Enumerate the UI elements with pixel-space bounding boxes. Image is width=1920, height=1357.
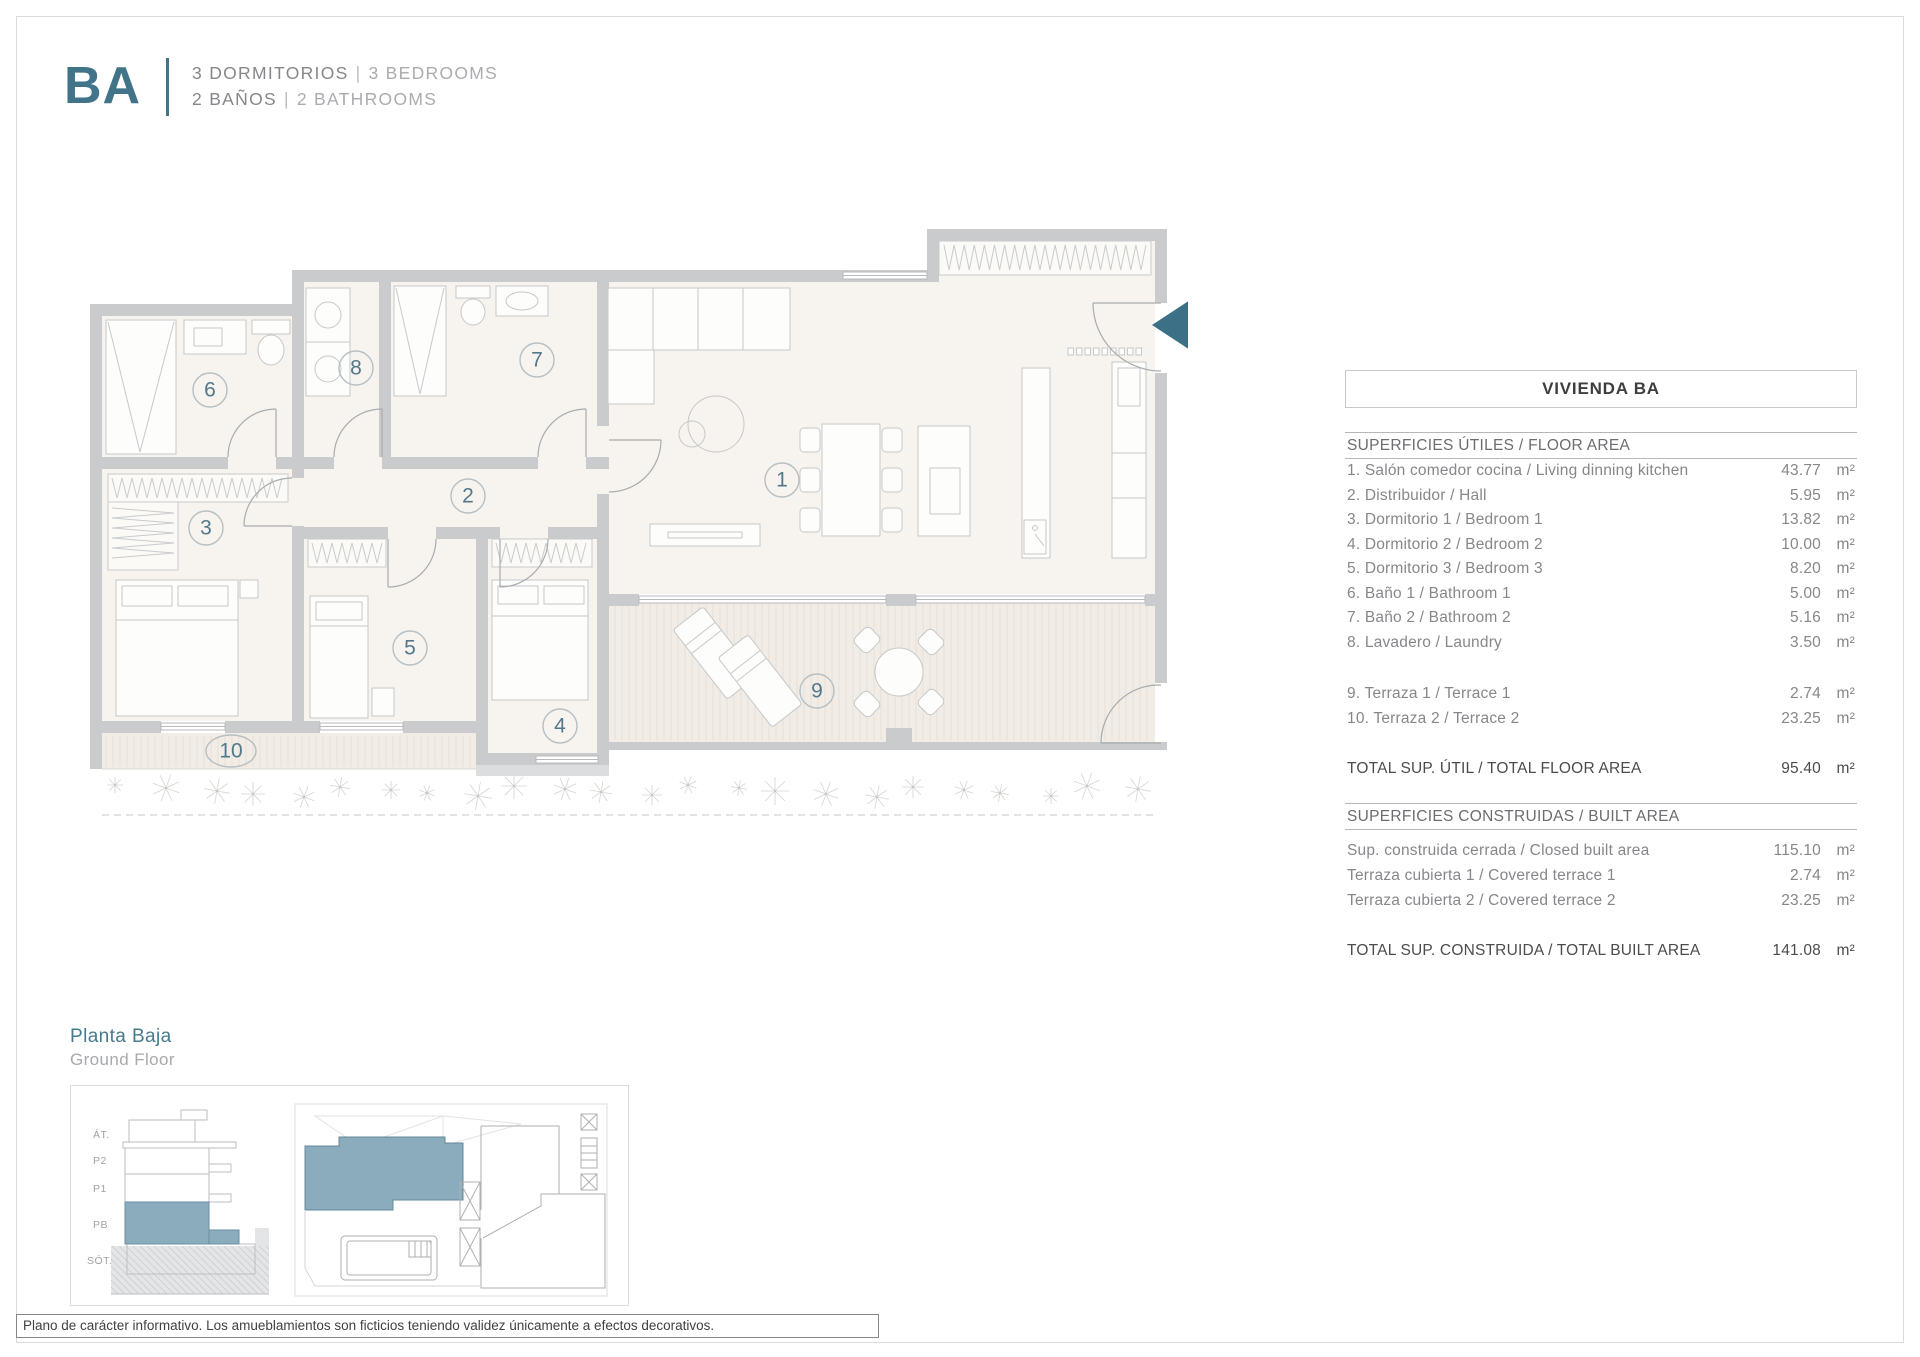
svg-text:10: 10 [219,740,242,763]
highlighted-floor [125,1202,239,1244]
svg-text:8: 8 [350,357,362,380]
svg-text:9: 9 [811,680,823,703]
row-unit: m² [1821,710,1855,728]
table-row: 6. Baño 1 / Bathroom 1 5.00 m² [1345,582,1857,607]
panel-title: VIVIENDA BA [1345,370,1857,408]
row-label: 6. Baño 1 / Bathroom 1 [1347,585,1757,603]
terrace-2-deck [102,733,482,769]
built-area-rows: Sup. construida cerrada / Closed built a… [1345,838,1857,913]
row-label: 4. Dormitorio 2 / Bedroom 2 [1347,536,1757,554]
table-row: Terraza cubierta 1 / Covered terrace 1 2… [1345,863,1857,888]
table-row: 10. Terraza 2 / Terrace 2 23.25 m² [1345,707,1857,732]
bedroom-1-furniture [116,580,258,716]
row-value: 5.00 [1757,585,1821,603]
total-value: 141.08 [1757,942,1821,960]
area-table-panel: VIVIENDA BA SUPERFICIES ÚTILES / FLOOR A… [1345,370,1857,963]
row-unit: m² [1821,536,1855,554]
disclaimer-text: Plano de carácter informativo. Los amueb… [16,1314,879,1338]
row-value: 3.50 [1757,634,1821,652]
table-row: 5. Dormitorio 3 / Bedroom 3 8.20 m² [1345,557,1857,582]
total-unit: m² [1821,760,1855,778]
separator: | [277,89,297,109]
svg-text:2: 2 [462,485,474,508]
logo: BA [64,60,141,112]
entrance-arrow-icon [1152,300,1188,350]
floor-area-rows: 1. Salón comedor cocina / Living dinning… [1345,459,1857,655]
row-value: 43.77 [1757,462,1821,480]
row-unit: m² [1821,462,1855,480]
svg-text:3: 3 [200,517,212,540]
total-built-area-row: TOTAL SUP. CONSTRUIDA / TOTAL BUILT AREA… [1345,939,1857,963]
row-value: 8.20 [1757,560,1821,578]
table-row: Terraza cubierta 2 / Covered terrace 2 2… [1345,888,1857,913]
pool-outline [341,1236,437,1280]
level-label-sotano: SÓT. [87,1254,112,1267]
highlighted-unit-footprint [305,1137,463,1210]
row-unit: m² [1821,511,1855,529]
row-value: 2.74 [1757,867,1821,885]
row-label: 1. Salón comedor cocina / Living dinning… [1347,462,1757,480]
bedroom-2-furniture [492,580,588,700]
row-unit: m² [1821,585,1855,603]
total-label: TOTAL SUP. CONSTRUIDA / TOTAL BUILT AREA [1347,942,1757,960]
row-value: 13.82 [1757,511,1821,529]
site-plan-diagram [293,1090,618,1302]
separator: | [349,63,369,83]
svg-text:4: 4 [554,715,566,738]
row-unit: m² [1821,609,1855,627]
floor-plan: 1 2 3 4 5 6 7 8 9 10 [88,228,1188,848]
row-unit: m² [1821,634,1855,652]
row-unit: m² [1821,892,1855,910]
row-value: 23.25 [1757,710,1821,728]
bathrooms-line: 2 BAÑOS|2 BATHROOMS [192,89,437,110]
terrace-rows: 9. Terraza 1 / Terrace 1 2.74 m² 10. Ter… [1345,682,1857,731]
row-label: Sup. construida cerrada / Closed built a… [1347,842,1757,860]
row-unit: m² [1821,487,1855,505]
row-value: 5.95 [1757,487,1821,505]
floor-area-heading: SUPERFICIES ÚTILES / FLOOR AREA [1345,432,1857,459]
row-unit: m² [1821,867,1855,885]
row-value: 23.25 [1757,892,1821,910]
row-label: 10. Terraza 2 / Terrace 2 [1347,710,1757,728]
table-row: 3. Dormitorio 1 / Bedroom 1 13.82 m² [1345,508,1857,533]
svg-text:6: 6 [204,379,216,402]
floor-key-title: Planta Baja [70,1026,172,1048]
level-label-p1: P1 [93,1183,107,1195]
total-floor-area-row: TOTAL SUP. ÚTIL / TOTAL FLOOR AREA 95.40… [1345,757,1857,781]
row-label: Terraza cubierta 2 / Covered terrace 2 [1347,892,1757,910]
row-value: 10.00 [1757,536,1821,554]
table-row: 9. Terraza 1 / Terrace 1 2.74 m² [1345,682,1857,707]
row-label: 7. Baño 2 / Bathroom 2 [1347,609,1757,627]
row-unit: m² [1821,560,1855,578]
bathrooms-en: 2 BATHROOMS [297,89,437,109]
table-row: Sup. construida cerrada / Closed built a… [1345,838,1857,863]
row-value: 115.10 [1757,842,1821,860]
row-label: 5. Dormitorio 3 / Bedroom 3 [1347,560,1757,578]
built-area-heading: SUPERFICIES CONSTRUIDAS / BUILT AREA [1345,803,1857,830]
row-value: 2.74 [1757,685,1821,703]
bedrooms-en: 3 BEDROOMS [368,63,498,83]
table-row: 2. Distribuidor / Hall 5.95 m² [1345,484,1857,509]
svg-text:5: 5 [404,637,416,660]
svg-text:7: 7 [531,349,543,372]
level-label-pb: PB [93,1219,108,1231]
row-unit: m² [1821,842,1855,860]
table-row: 8. Lavadero / Laundry 3.50 m² [1345,631,1857,656]
bedrooms-es: 3 DORMITORIOS [192,63,349,83]
floor-key-subtitle: Ground Floor [70,1050,175,1070]
svg-text:1: 1 [776,469,788,492]
logo-divider [166,58,169,116]
level-label-p2: P2 [93,1155,107,1167]
total-unit: m² [1821,942,1855,960]
row-unit: m² [1821,685,1855,703]
row-label: Terraza cubierta 1 / Covered terrace 1 [1347,867,1757,885]
building-section-diagram: ÁT. P2 P1 PB SÓT. [83,1092,293,1302]
level-label-atico: ÁT. [93,1128,110,1141]
row-value: 5.16 [1757,609,1821,627]
table-row: 1. Salón comedor cocina / Living dinning… [1345,459,1857,484]
row-label: 2. Distribuidor / Hall [1347,487,1757,505]
table-row: 7. Baño 2 / Bathroom 2 5.16 m² [1345,606,1857,631]
key-diagrams-box: ÁT. P2 P1 PB SÓT. [70,1085,629,1306]
total-label: TOTAL SUP. ÚTIL / TOTAL FLOOR AREA [1347,760,1757,778]
bathrooms-es: 2 BAÑOS [192,89,277,109]
garden-plants [107,773,1151,810]
row-label: 8. Lavadero / Laundry [1347,634,1757,652]
row-label: 3. Dormitorio 1 / Bedroom 1 [1347,511,1757,529]
bedrooms-line: 3 DORMITORIOS|3 BEDROOMS [192,63,498,84]
table-row: 4. Dormitorio 2 / Bedroom 2 10.00 m² [1345,533,1857,558]
total-value: 95.40 [1757,760,1821,778]
row-label: 9. Terraza 1 / Terrace 1 [1347,685,1757,703]
